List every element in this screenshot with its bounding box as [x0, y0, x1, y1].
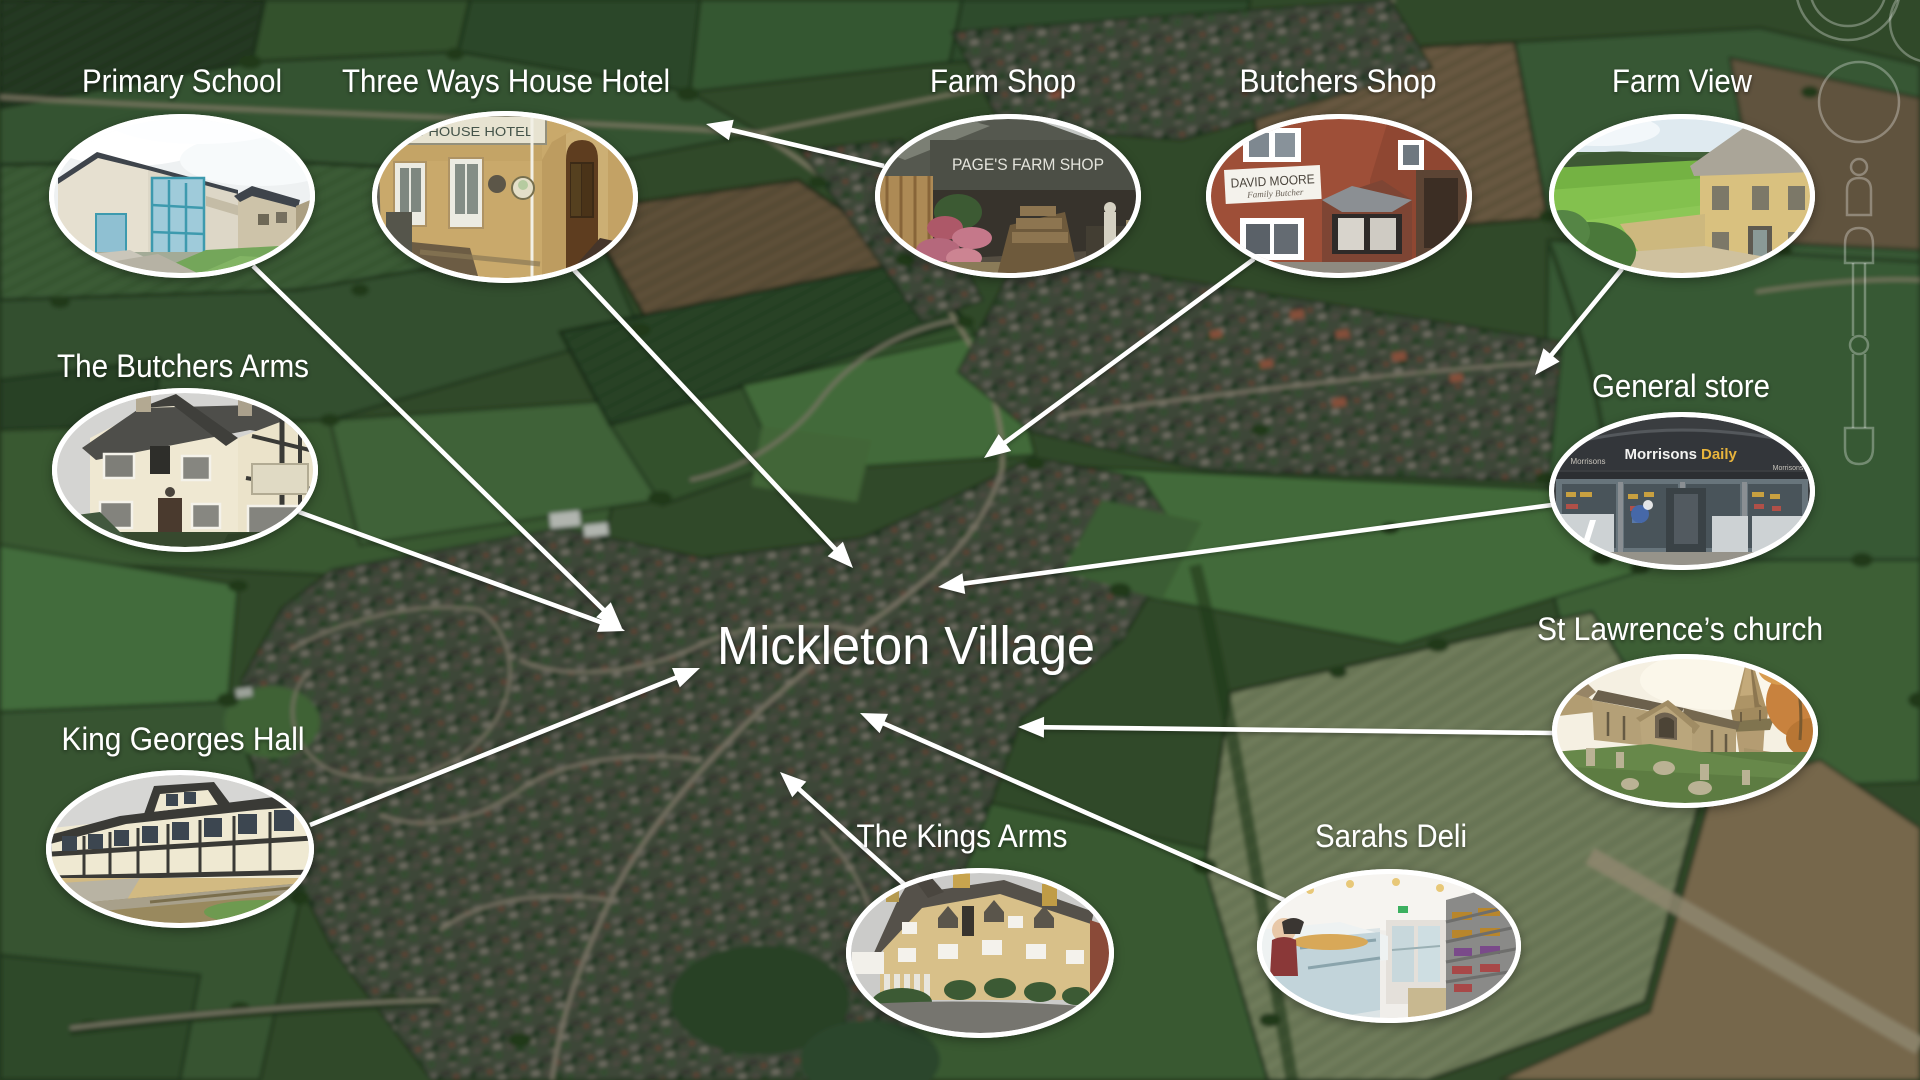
svg-text:PAGE'S FARM SHOP: PAGE'S FARM SHOP — [952, 155, 1104, 174]
svg-text:The Butchers Arms: The Butchers Arms — [57, 348, 309, 384]
svg-text:Sarahs Deli: Sarahs Deli — [1315, 818, 1467, 854]
svg-text:Butchers Shop: Butchers Shop — [1240, 63, 1437, 99]
svg-text:Farm View: Farm View — [1612, 63, 1753, 99]
svg-text:Morrisons: Morrisons — [1624, 446, 1697, 463]
svg-text:Morrisons: Morrisons — [1773, 465, 1804, 472]
svg-text:Farm Shop: Farm Shop — [930, 63, 1076, 99]
svg-text:Primary School: Primary School — [82, 63, 282, 99]
svg-text:Morrisons: Morrisons — [1570, 457, 1605, 466]
svg-text:Three Ways House Hotel: Three Ways House Hotel — [342, 63, 670, 99]
svg-text:King Georges Hall: King Georges Hall — [62, 721, 305, 757]
svg-text:General store: General store — [1592, 368, 1770, 404]
svg-text:Mickleton Village: Mickleton Village — [717, 616, 1095, 676]
svg-text:The Kings Arms: The Kings Arms — [857, 818, 1068, 854]
svg-text:Daily: Daily — [1701, 446, 1738, 463]
svg-text:St Lawrence’s church: St Lawrence’s church — [1537, 611, 1823, 647]
